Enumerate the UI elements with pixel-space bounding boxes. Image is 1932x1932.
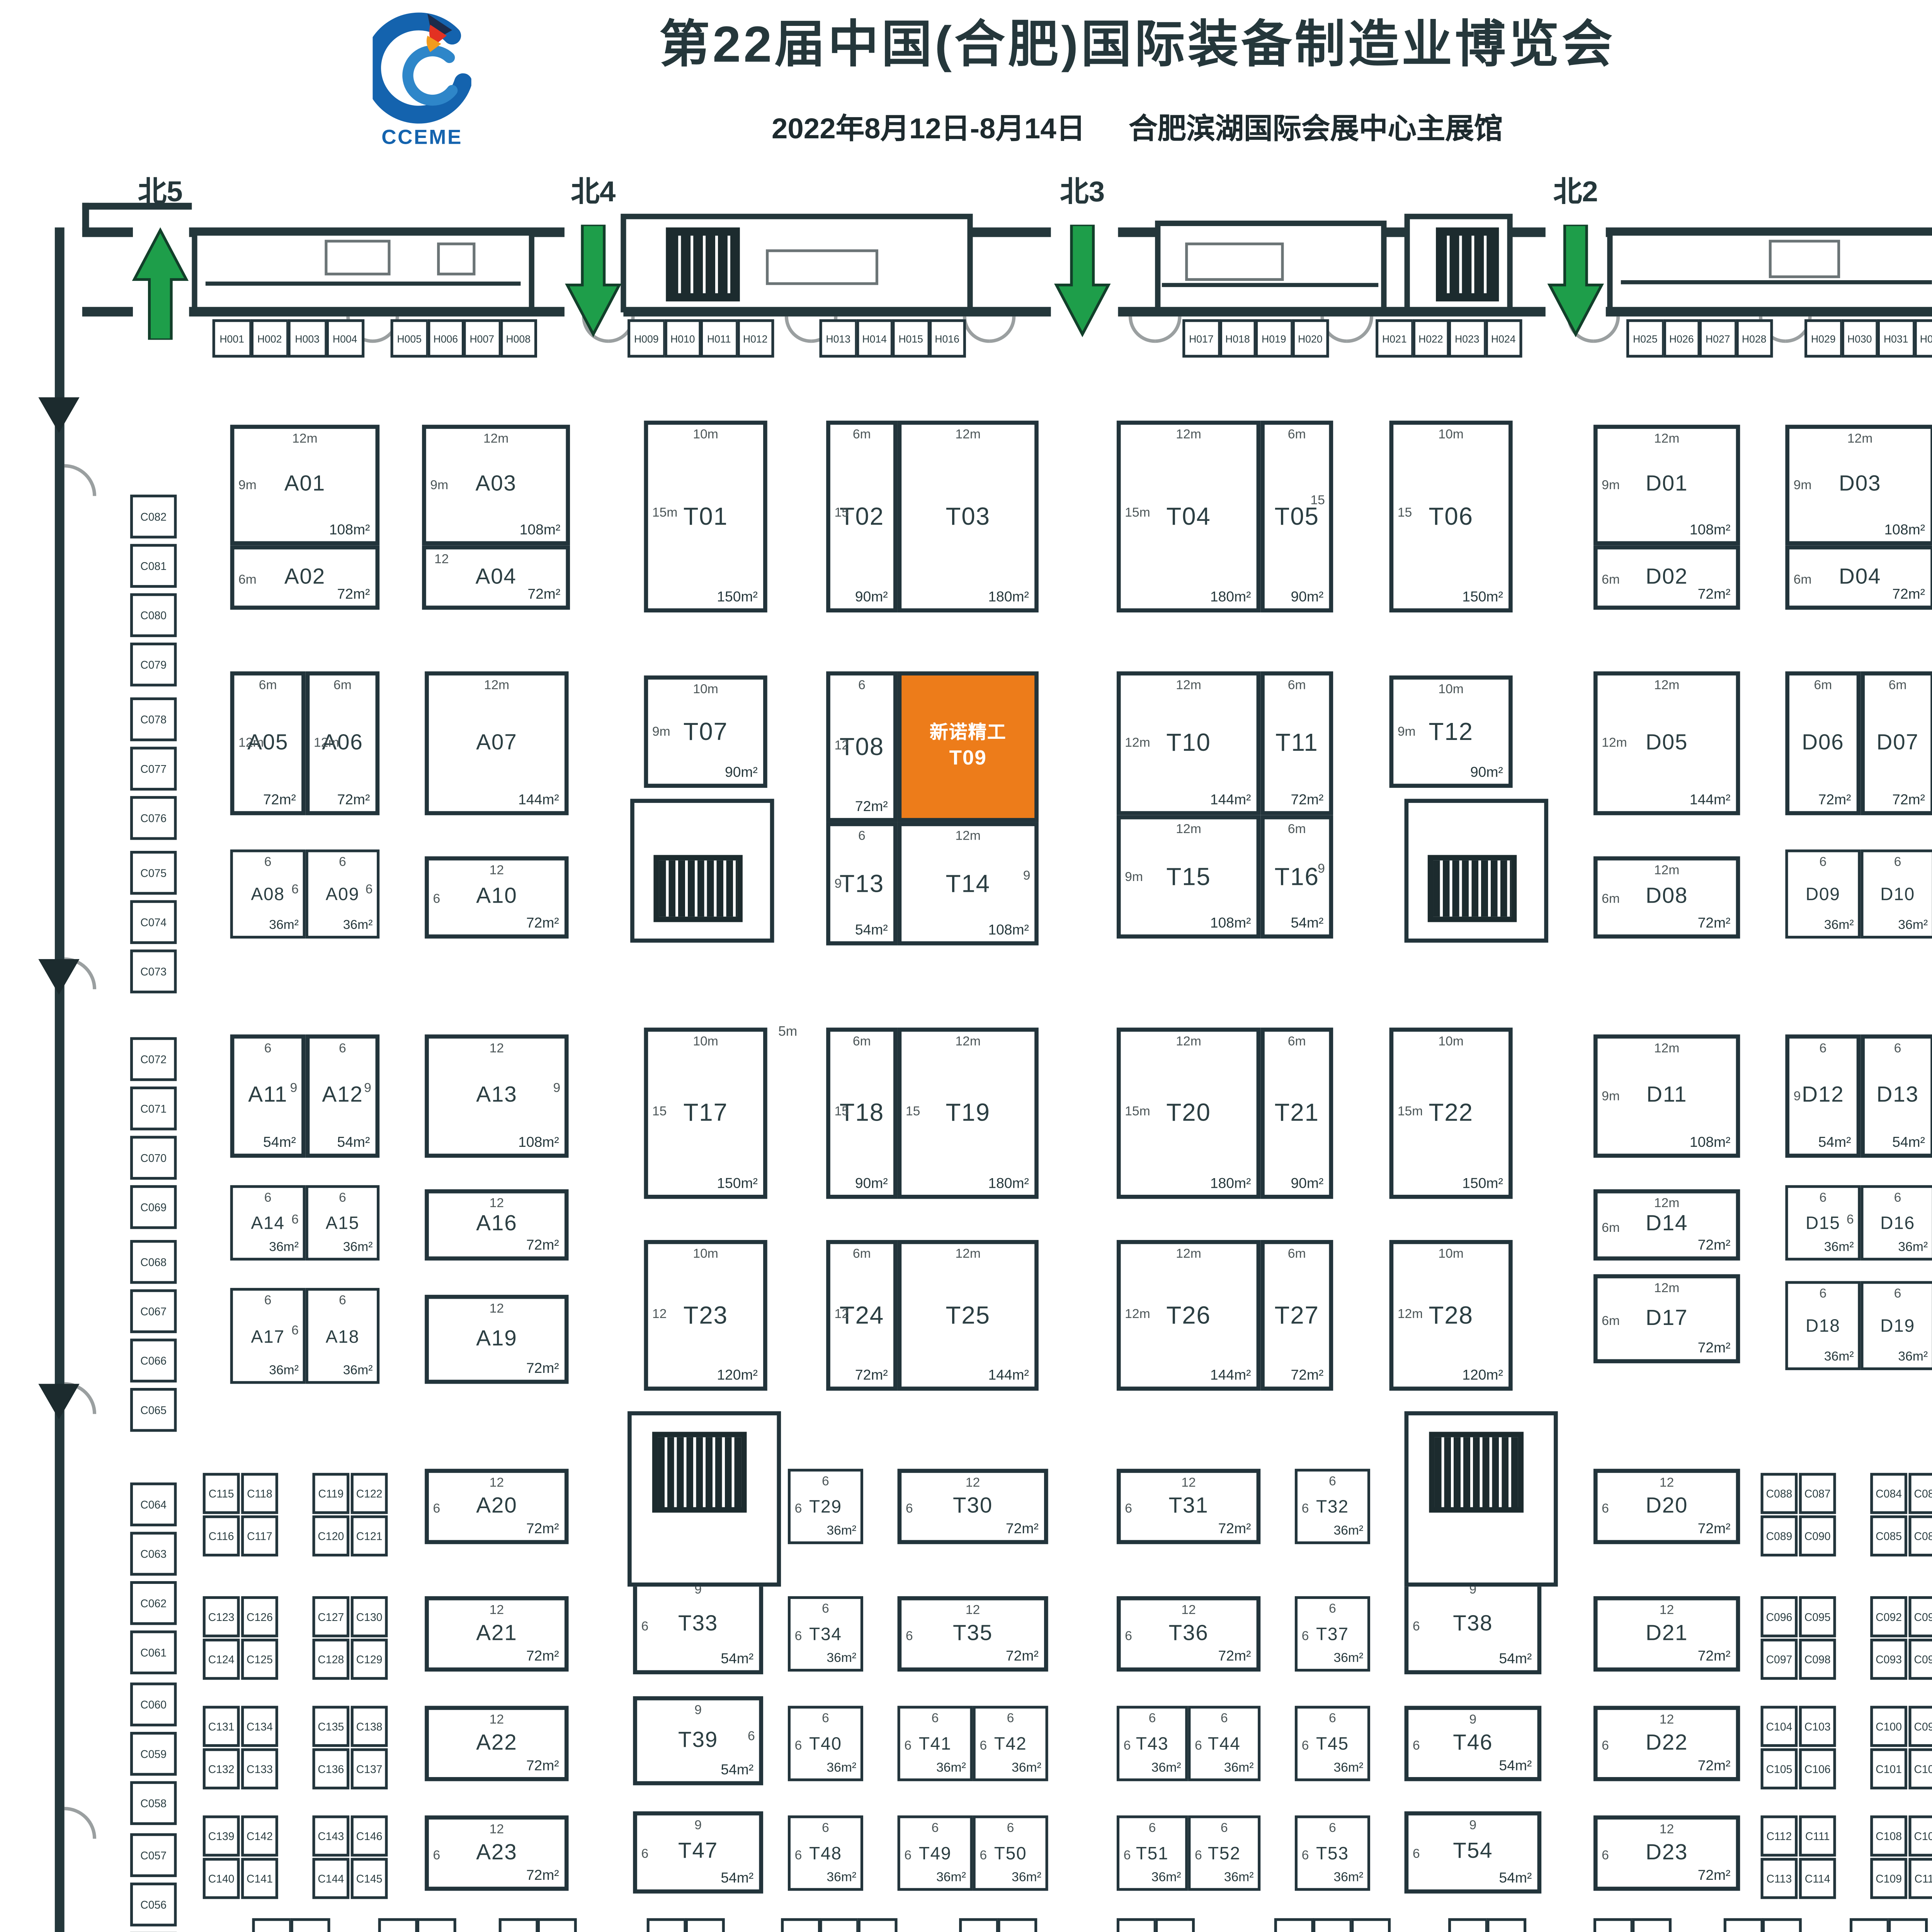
booth-C112[interactable]: C112 — [1760, 1815, 1798, 1856]
booth-C080[interactable]: C080 — [130, 593, 177, 637]
dim-top: 12m — [901, 1036, 1034, 1049]
booth-T10[interactable]: 12m12mT10144m² — [1117, 671, 1260, 815]
booth-T31[interactable]: 126T3172m² — [1117, 1469, 1260, 1544]
booth-T50[interactable]: 66T5036m² — [973, 1815, 1048, 1891]
booth-C083[interactable]: C083 — [1908, 1473, 1932, 1514]
booth-T39[interactable]: 96T3954m² — [633, 1696, 763, 1785]
booth-C066[interactable]: C066 — [130, 1338, 177, 1382]
booth-label: T23 — [683, 1301, 728, 1330]
dim-top: 12 — [1121, 1604, 1257, 1617]
booth-C089[interactable]: C089 — [1760, 1515, 1798, 1556]
booth-C126[interactable]: C126 — [241, 1596, 278, 1637]
booth-C092[interactable]: C092 — [1870, 1596, 1907, 1637]
booth-H019[interactable]: H019 — [1255, 319, 1293, 357]
booth-C108[interactable]: C108 — [1870, 1815, 1907, 1856]
booth-D01[interactable]: 12m9mD01108m² — [1594, 425, 1740, 545]
booth-T21[interactable]: 6mT2190m² — [1260, 1027, 1333, 1199]
booth-A05[interactable]: 6m12mA0572m² — [230, 671, 306, 815]
booth-H008[interactable]: H008 — [499, 319, 537, 357]
booth-T19[interactable]: 12m15T19180m² — [898, 1027, 1039, 1199]
booth-label: 新诺精工T09 — [930, 720, 1007, 773]
booth-T49[interactable]: 66T4936m² — [898, 1815, 973, 1891]
booth-C039[interactable]: C039 — [1274, 1918, 1314, 1932]
booth-C144[interactable]: C144 — [312, 1858, 349, 1899]
booth-A09[interactable]: 66A0936m² — [306, 849, 379, 938]
booth-D12[interactable]: 69D1254m² — [1785, 1034, 1861, 1158]
booth-H027[interactable]: H027 — [1699, 319, 1737, 357]
booth-area: 36m² — [1012, 1870, 1041, 1885]
booth-C045[interactable]: C045 — [819, 1918, 859, 1932]
booth-C122[interactable]: C122 — [351, 1473, 388, 1514]
booth-A18[interactable]: 6A1836m² — [306, 1288, 379, 1384]
booth-A14[interactable]: 66A1436m² — [230, 1185, 306, 1260]
booth-T32[interactable]: 66T3236m² — [1295, 1469, 1370, 1544]
booth-C142[interactable]: C142 — [241, 1815, 278, 1856]
booth-C081[interactable]: C081 — [130, 544, 177, 588]
booth-T35[interactable]: 126T3572m² — [898, 1596, 1048, 1672]
booth-A01[interactable]: 12m9mA01108m² — [230, 425, 380, 545]
booth-label: T10 — [1166, 729, 1211, 757]
booth-D21[interactable]: 12D2172m² — [1594, 1596, 1740, 1672]
booth-C067[interactable]: C067 — [130, 1289, 177, 1333]
booth-T25[interactable]: 12mT25144m² — [898, 1240, 1039, 1391]
booth-C113[interactable]: C113 — [1760, 1858, 1798, 1899]
booth-C145[interactable]: C145 — [351, 1858, 388, 1899]
booth-area: 72m² — [1698, 1521, 1731, 1537]
booth-C050[interactable]: C050 — [499, 1918, 539, 1932]
booth-T29[interactable]: 66T2936m² — [788, 1469, 863, 1544]
booth-H003[interactable]: H003 — [288, 319, 327, 357]
dim-left: 15m — [1398, 1105, 1423, 1118]
booth-C134[interactable]: C134 — [241, 1706, 278, 1747]
booth-T16[interactable]: 6m9T1654m² — [1260, 815, 1333, 939]
booth-T33[interactable]: 96T3354m² — [633, 1576, 763, 1674]
booth-D17[interactable]: 12m6mD1772m² — [1594, 1274, 1740, 1363]
booth-C058[interactable]: C058 — [130, 1781, 177, 1825]
booth-C084[interactable]: C084 — [1870, 1473, 1907, 1514]
booth-area: 72m² — [337, 587, 370, 603]
dim-top: 6 — [308, 1192, 377, 1205]
booth-T38[interactable]: 96T3854m² — [1405, 1576, 1542, 1674]
booth-C088[interactable]: C088 — [1760, 1473, 1798, 1514]
booth-H010[interactable]: H010 — [664, 319, 702, 357]
stairs-icon — [1429, 1432, 1524, 1513]
booth-T51[interactable]: 66T5136m² — [1117, 1815, 1188, 1891]
booth-C109[interactable]: C109 — [1870, 1858, 1907, 1899]
booth-C078[interactable]: C078 — [130, 697, 177, 741]
dim-left: 6 — [980, 1740, 987, 1753]
booth-C036[interactable]: C036 — [1448, 1918, 1488, 1932]
dim-top: 12 — [1598, 1824, 1736, 1837]
booth-C074[interactable]: C074 — [130, 900, 177, 944]
booth-C137[interactable]: C137 — [351, 1748, 388, 1789]
booth-C130[interactable]: C130 — [351, 1596, 388, 1637]
booth-C111[interactable]: C111 — [1799, 1815, 1836, 1856]
dim-left: 6 — [1602, 1740, 1609, 1753]
booth-label: D08 — [1646, 885, 1688, 910]
booth-C141[interactable]: C141 — [241, 1858, 278, 1899]
booth-C129[interactable]: C129 — [351, 1639, 388, 1680]
booth-C037[interactable]: C037 — [1351, 1918, 1391, 1932]
booth-C060[interactable]: C060 — [130, 1682, 177, 1726]
booth-C032[interactable]: C032 — [1724, 1918, 1764, 1932]
booth-C098[interactable]: C098 — [1799, 1639, 1836, 1680]
booth-H015[interactable]: H015 — [892, 319, 930, 357]
booth-D19[interactable]: 6D1936m² — [1861, 1281, 1932, 1370]
booth-A10[interactable]: 126A1072m² — [425, 856, 568, 939]
booth-C121[interactable]: C121 — [351, 1515, 388, 1556]
booth-C057[interactable]: C057 — [130, 1833, 177, 1877]
booth-A23[interactable]: 126A2372m² — [425, 1815, 568, 1891]
booth-C065[interactable]: C065 — [130, 1388, 177, 1432]
booth-T54[interactable]: 96T5454m² — [1405, 1811, 1542, 1894]
booth-D03[interactable]: 12m9mD03108m² — [1785, 425, 1932, 545]
booth-C051[interactable]: C051 — [417, 1918, 456, 1932]
booth-H013[interactable]: H013 — [819, 319, 857, 357]
booth-H004[interactable]: H004 — [325, 319, 364, 357]
booth-H012[interactable]: H012 — [736, 319, 774, 357]
booth-D22[interactable]: 126D2272m² — [1594, 1706, 1740, 1781]
dim-left: 12 — [652, 1308, 667, 1321]
booth-C110[interactable]: C110 — [1908, 1858, 1932, 1899]
dim-top: 6m — [1789, 680, 1857, 693]
restroom-block — [630, 799, 774, 942]
booth-C136[interactable]: C136 — [312, 1748, 349, 1789]
booth-C127[interactable]: C127 — [312, 1596, 349, 1637]
booth-T48[interactable]: 66T4836m² — [788, 1815, 863, 1891]
booth-T05[interactable]: 6m15T0590m² — [1260, 421, 1333, 612]
booth-C076[interactable]: C076 — [130, 796, 177, 840]
booth-C096[interactable]: C096 — [1760, 1596, 1798, 1637]
booth-A12[interactable]: 69A1254m² — [306, 1034, 379, 1158]
booth-C072[interactable]: C072 — [130, 1037, 177, 1081]
booth-C044[interactable]: C044 — [858, 1918, 898, 1932]
booth-T23[interactable]: 10m12T23120m² — [644, 1240, 767, 1391]
booth-C101[interactable]: C101 — [1870, 1748, 1907, 1789]
booth-A06[interactable]: 6m12mA0672m² — [306, 671, 379, 815]
booth-C094[interactable]: C094 — [1908, 1639, 1932, 1680]
booth-area: 72m² — [263, 792, 296, 809]
dim-left: 9m — [1602, 1090, 1620, 1104]
booth-T28[interactable]: 10m12mT28120m² — [1389, 1240, 1513, 1391]
booth-T06[interactable]: 10m15T06150m² — [1389, 421, 1513, 612]
booth-T40[interactable]: 66T4036m² — [788, 1706, 863, 1781]
booth-C095[interactable]: C095 — [1799, 1596, 1836, 1637]
booth-label: D09 — [1806, 884, 1840, 904]
booth-H017[interactable]: H017 — [1182, 319, 1220, 357]
dim-top: 12m — [1121, 1248, 1257, 1261]
booth-area: 144m² — [1210, 792, 1251, 809]
booth-D14[interactable]: 12m6mD1472m² — [1594, 1189, 1740, 1260]
booth-C030[interactable]: C030 — [1850, 1918, 1889, 1932]
booth-H002[interactable]: H002 — [250, 319, 289, 357]
booth-D16[interactable]: 6D1636m² — [1861, 1185, 1932, 1260]
booth-H006[interactable]: H006 — [427, 319, 465, 357]
booth-T20[interactable]: 12m15mT20180m² — [1117, 1027, 1260, 1199]
booth-C049[interactable]: C049 — [537, 1918, 577, 1932]
booth-C052[interactable]: C052 — [378, 1918, 418, 1932]
booth-A13[interactable]: 129A13108m² — [425, 1034, 568, 1158]
booth-H009[interactable]: H009 — [628, 319, 665, 357]
booth-A19[interactable]: 12A1972m² — [425, 1295, 568, 1384]
booth-D11[interactable]: 12m9mD11108m² — [1594, 1034, 1740, 1158]
booth-T41[interactable]: 66T4136m² — [898, 1706, 973, 1781]
booth-C131[interactable]: C131 — [203, 1706, 240, 1747]
booth-T27[interactable]: 6mT2772m² — [1260, 1240, 1333, 1391]
booth-C062[interactable]: C062 — [130, 1581, 177, 1625]
booth-D15[interactable]: 66D1536m² — [1785, 1185, 1861, 1260]
booth-label: D04 — [1839, 565, 1881, 590]
booth-T36[interactable]: 126T3672m² — [1117, 1596, 1260, 1672]
booth-A16[interactable]: 12A1672m² — [425, 1189, 568, 1260]
booth-C064[interactable]: C064 — [130, 1483, 177, 1526]
booth-C135[interactable]: C135 — [312, 1706, 349, 1747]
booth-T34[interactable]: 66T3436m² — [788, 1596, 863, 1672]
booth-A22[interactable]: 12A2272m² — [425, 1706, 568, 1781]
booth-D02[interactable]: 6mD0272m² — [1594, 545, 1740, 610]
booth-A07[interactable]: 12mA07144m² — [425, 671, 568, 815]
dim-right: 6 — [366, 884, 373, 897]
booth-C106[interactable]: C106 — [1799, 1748, 1836, 1789]
dim-left: 6 — [795, 1503, 802, 1516]
booth-T44[interactable]: 66T4436m² — [1188, 1706, 1260, 1781]
booth-D05[interactable]: 12m12mD05144m² — [1594, 671, 1740, 815]
booth-C059[interactable]: C059 — [130, 1732, 177, 1776]
booth-T13[interactable]: 69T1354m² — [826, 822, 897, 946]
booth-T01[interactable]: 10m15mT01150m² — [644, 421, 767, 612]
booth-label: T13 — [840, 869, 884, 898]
booth-T52[interactable]: 66T5236m² — [1188, 1815, 1260, 1891]
booth-C091[interactable]: C091 — [1908, 1596, 1932, 1637]
booth-T09[interactable]: 新诺精工T09 — [898, 671, 1039, 822]
booth-H021[interactable]: H021 — [1376, 319, 1413, 357]
booth-D20[interactable]: 126D2072m² — [1594, 1469, 1740, 1544]
booth-C103[interactable]: C103 — [1799, 1706, 1836, 1747]
dim-top: 6 — [1865, 1043, 1930, 1056]
booth-C070[interactable]: C070 — [130, 1136, 177, 1180]
booth-C107[interactable]: C107 — [1908, 1815, 1932, 1856]
booth-C125[interactable]: C125 — [241, 1639, 278, 1680]
booth-H007[interactable]: H007 — [463, 319, 501, 357]
booth-D10[interactable]: 6D1036m² — [1861, 849, 1932, 938]
booth-H011[interactable]: H011 — [700, 319, 738, 357]
booth-H016[interactable]: H016 — [928, 319, 966, 357]
booth-C061[interactable]: C061 — [130, 1631, 177, 1674]
booth-T14[interactable]: 12m9T14108m² — [898, 822, 1039, 946]
booth-H026[interactable]: H026 — [1663, 319, 1701, 357]
booth-C100[interactable]: C100 — [1870, 1706, 1907, 1747]
booth-A17[interactable]: 66A1736m² — [230, 1288, 306, 1384]
booth-A03[interactable]: 12m9mA03108m² — [422, 425, 570, 545]
booth-C038[interactable]: C038 — [1313, 1918, 1352, 1932]
booth-C117[interactable]: C117 — [241, 1515, 278, 1556]
booth-C133[interactable]: C133 — [241, 1748, 278, 1789]
booth-C043[interactable]: C043 — [959, 1918, 999, 1932]
booth-C090[interactable]: C090 — [1799, 1515, 1836, 1556]
booth-C115[interactable]: C115 — [203, 1473, 240, 1514]
booth-C139[interactable]: C139 — [203, 1815, 240, 1856]
dim-top: 12m — [234, 433, 375, 446]
dim-top: 6 — [1119, 1822, 1185, 1835]
dim-right: 9 — [364, 1082, 371, 1095]
booth-C029[interactable]: C029 — [1888, 1918, 1928, 1932]
dim-top: 12m — [1598, 1043, 1736, 1056]
booth-label: A19 — [476, 1327, 517, 1352]
booth-C041[interactable]: C041 — [1117, 1918, 1156, 1932]
booth-C079[interactable]: C079 — [130, 643, 177, 686]
booth-T07[interactable]: 10m9mT0790m² — [644, 675, 767, 788]
booth-H001[interactable]: H001 — [213, 319, 252, 357]
booth-C124[interactable]: C124 — [203, 1639, 240, 1680]
booth-T46[interactable]: 96T4654m² — [1405, 1706, 1542, 1781]
booth-C143[interactable]: C143 — [312, 1815, 349, 1856]
booth-C128[interactable]: C128 — [312, 1639, 349, 1680]
booth-C102[interactable]: C102 — [1908, 1748, 1932, 1789]
booth-A15[interactable]: 6A1536m² — [306, 1185, 379, 1260]
booth-T15[interactable]: 12m9mT15108m² — [1117, 815, 1260, 939]
booth-C075[interactable]: C075 — [130, 851, 177, 895]
booth-T04[interactable]: 12m15mT04180m² — [1117, 421, 1260, 612]
booth-C063[interactable]: C063 — [130, 1532, 177, 1575]
booth-area: 108m² — [1884, 522, 1925, 539]
booth-C123[interactable]: C123 — [203, 1596, 240, 1637]
booth-C046[interactable]: C046 — [781, 1918, 821, 1932]
booth-C031[interactable]: C031 — [1762, 1918, 1802, 1932]
dim-left: 6 — [795, 1740, 802, 1753]
booth-H005[interactable]: H005 — [391, 319, 429, 357]
dim-top: 6m — [310, 680, 375, 693]
booth-A04[interactable]: 12A0472m² — [422, 545, 570, 610]
booth-C054[interactable]: C054 — [252, 1918, 292, 1932]
booth-C071[interactable]: C071 — [130, 1087, 177, 1130]
booth-D04[interactable]: 6mD0472m² — [1785, 545, 1932, 610]
booth-D06[interactable]: 6mD0672m² — [1785, 671, 1861, 815]
dim-left: 6 — [641, 1849, 648, 1862]
booth-C069[interactable]: C069 — [130, 1185, 177, 1229]
booth-C086[interactable]: C086 — [1908, 1515, 1932, 1556]
booth-C077[interactable]: C077 — [130, 747, 177, 791]
booth-C132[interactable]: C132 — [203, 1748, 240, 1789]
booth-C042[interactable]: C042 — [997, 1918, 1037, 1932]
booth-C119[interactable]: C119 — [312, 1473, 349, 1514]
booth-T37[interactable]: 66T3736m² — [1295, 1596, 1370, 1672]
dim-left: 6m — [238, 575, 257, 588]
booth-C087[interactable]: C087 — [1799, 1473, 1836, 1514]
booth-C053[interactable]: C053 — [291, 1918, 330, 1932]
booth-C104[interactable]: C104 — [1760, 1706, 1798, 1747]
booth-T02[interactable]: 6m15T0290m² — [826, 421, 897, 612]
booth-A02[interactable]: 6mA0272m² — [230, 545, 380, 610]
booth-C105[interactable]: C105 — [1760, 1748, 1798, 1789]
booth-T26[interactable]: 12m12mT26144m² — [1117, 1240, 1260, 1391]
booth-T43[interactable]: 66T4336m² — [1117, 1706, 1188, 1781]
booth-C073[interactable]: C073 — [130, 949, 177, 993]
booth-C034[interactable]: C034 — [1594, 1918, 1633, 1932]
booth-label: T45 — [1316, 1733, 1349, 1754]
booth-C097[interactable]: C097 — [1760, 1639, 1798, 1680]
booth-C085[interactable]: C085 — [1870, 1515, 1907, 1556]
booth-D08[interactable]: 12m6mD0872m² — [1594, 856, 1740, 939]
booth-A08[interactable]: 66A0836m² — [230, 849, 306, 938]
booth-D07[interactable]: 6mD0772m² — [1861, 671, 1932, 815]
booth-C138[interactable]: C138 — [351, 1706, 388, 1747]
booth-C116[interactable]: C116 — [203, 1515, 240, 1556]
booth-label: D06 — [1802, 731, 1844, 756]
booth-H032[interactable]: H032 — [1913, 319, 1932, 357]
booth-T12[interactable]: 10m9mT1290m² — [1389, 675, 1513, 788]
booth-C056[interactable]: C056 — [130, 1883, 177, 1926]
booth-T22[interactable]: 10m15mT22150m² — [1389, 1027, 1513, 1199]
booth-D09[interactable]: 6D0936m² — [1785, 849, 1861, 938]
booth-H030[interactable]: H030 — [1841, 319, 1879, 357]
booth-C035[interactable]: C035 — [1486, 1918, 1526, 1932]
booth-A20[interactable]: 126A2072m² — [425, 1469, 568, 1544]
booth-C082[interactable]: C082 — [130, 495, 177, 538]
booth-D23[interactable]: 126D2372m² — [1594, 1815, 1740, 1891]
booth-H028[interactable]: H028 — [1735, 319, 1773, 357]
booth-H023[interactable]: H023 — [1448, 319, 1486, 357]
booth-T47[interactable]: 96T4754m² — [633, 1811, 763, 1894]
booth-C146[interactable]: C146 — [351, 1815, 388, 1856]
booth-label: A15 — [326, 1213, 359, 1233]
booth-C047[interactable]: C047 — [685, 1918, 725, 1932]
booth-T24[interactable]: 6m12T2472m² — [826, 1240, 897, 1391]
booth-C140[interactable]: C140 — [203, 1858, 240, 1899]
booth-H022[interactable]: H022 — [1412, 319, 1450, 357]
booth-label: D18 — [1806, 1315, 1840, 1336]
booth-C048[interactable]: C048 — [647, 1918, 687, 1932]
booth-C114[interactable]: C114 — [1799, 1858, 1836, 1899]
booth-T53[interactable]: 66T5336m² — [1295, 1815, 1370, 1891]
booth-area: 72m² — [526, 1867, 559, 1884]
booth-A21[interactable]: 12A2172m² — [425, 1596, 568, 1672]
booth-H025[interactable]: H025 — [1626, 319, 1664, 357]
booth-T11[interactable]: 6mT1172m² — [1260, 671, 1333, 815]
booth-D13[interactable]: 6D1354m² — [1861, 1034, 1932, 1158]
booth-T17[interactable]: 10m15T17150m² — [644, 1027, 767, 1199]
booth-label: T43 — [1136, 1733, 1169, 1754]
dim-left: 6m — [1602, 575, 1620, 588]
booth-C040[interactable]: C040 — [1155, 1918, 1195, 1932]
booth-T45[interactable]: 66T4536m² — [1295, 1706, 1370, 1781]
booth-C099[interactable]: C099 — [1908, 1706, 1932, 1747]
dim-top: 6m — [1865, 680, 1930, 693]
booth-T42[interactable]: 66T4236m² — [973, 1706, 1048, 1781]
dim-top: 6 — [1789, 1043, 1857, 1056]
booth-D18[interactable]: 6D1836m² — [1785, 1281, 1861, 1370]
booth-T03[interactable]: 12mT03180m² — [898, 421, 1039, 612]
dim-left: 6 — [433, 1503, 440, 1516]
booth-A11[interactable]: 69A1154m² — [230, 1034, 306, 1158]
booth-T08[interactable]: 612T0872m² — [826, 671, 897, 822]
booth-area: 36m² — [343, 918, 373, 933]
dim-top: 10m — [648, 684, 763, 697]
booth-H029[interactable]: H029 — [1804, 319, 1842, 357]
booth-area: 72m² — [1006, 1521, 1039, 1537]
booth-C068[interactable]: C068 — [130, 1240, 177, 1284]
booth-C033[interactable]: C033 — [1632, 1918, 1672, 1932]
booth-H018[interactable]: H018 — [1219, 319, 1257, 357]
booth-C093[interactable]: C093 — [1870, 1639, 1907, 1680]
booth-C120[interactable]: C120 — [312, 1515, 349, 1556]
booth-H024[interactable]: H024 — [1485, 319, 1522, 357]
booth-H014[interactable]: H014 — [855, 319, 893, 357]
booth-T18[interactable]: 6m15T1890m² — [826, 1027, 897, 1199]
booth-H020[interactable]: H020 — [1291, 319, 1329, 357]
booth-T30[interactable]: 126T3072m² — [898, 1469, 1048, 1544]
booth-H031[interactable]: H031 — [1877, 319, 1915, 357]
booth-C118[interactable]: C118 — [241, 1473, 278, 1514]
